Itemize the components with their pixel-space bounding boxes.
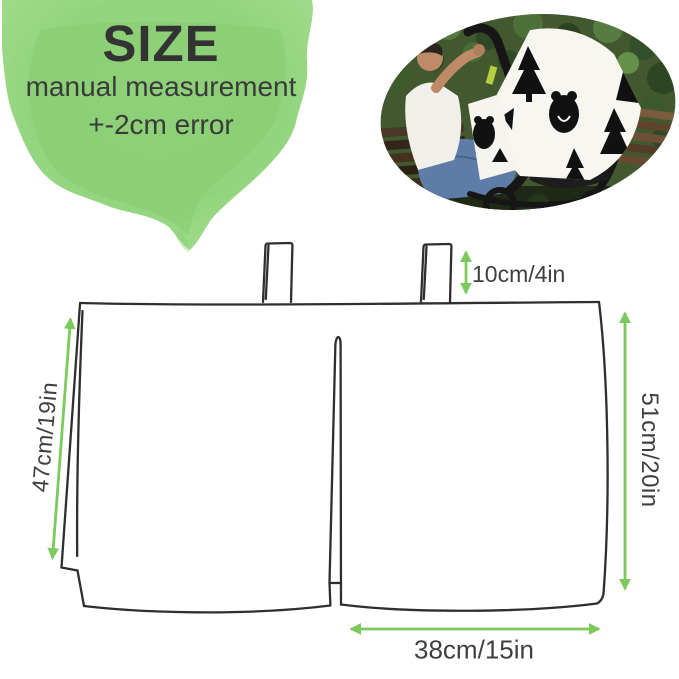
left-edge-lower bbox=[78, 571, 85, 607]
product-size-infographic: SIZE manual measurement +-2cm error bbox=[0, 0, 679, 679]
cover-line-drawing bbox=[0, 0, 679, 679]
bottom-edge-right bbox=[341, 604, 597, 611]
cover-outline bbox=[62, 243, 608, 612]
top-edge bbox=[80, 302, 599, 305]
right-height-label: 51cm/20in bbox=[635, 392, 663, 507]
left-flap-step bbox=[62, 568, 78, 571]
center-slit bbox=[330, 337, 342, 605]
right-edge bbox=[597, 302, 608, 604]
dimension-arrows bbox=[53, 252, 626, 629]
bottom-edge-left bbox=[84, 583, 330, 612]
tab-height-label: 10cm/4in bbox=[472, 261, 565, 288]
bottom-width-label: 38cm/15in bbox=[414, 635, 534, 666]
